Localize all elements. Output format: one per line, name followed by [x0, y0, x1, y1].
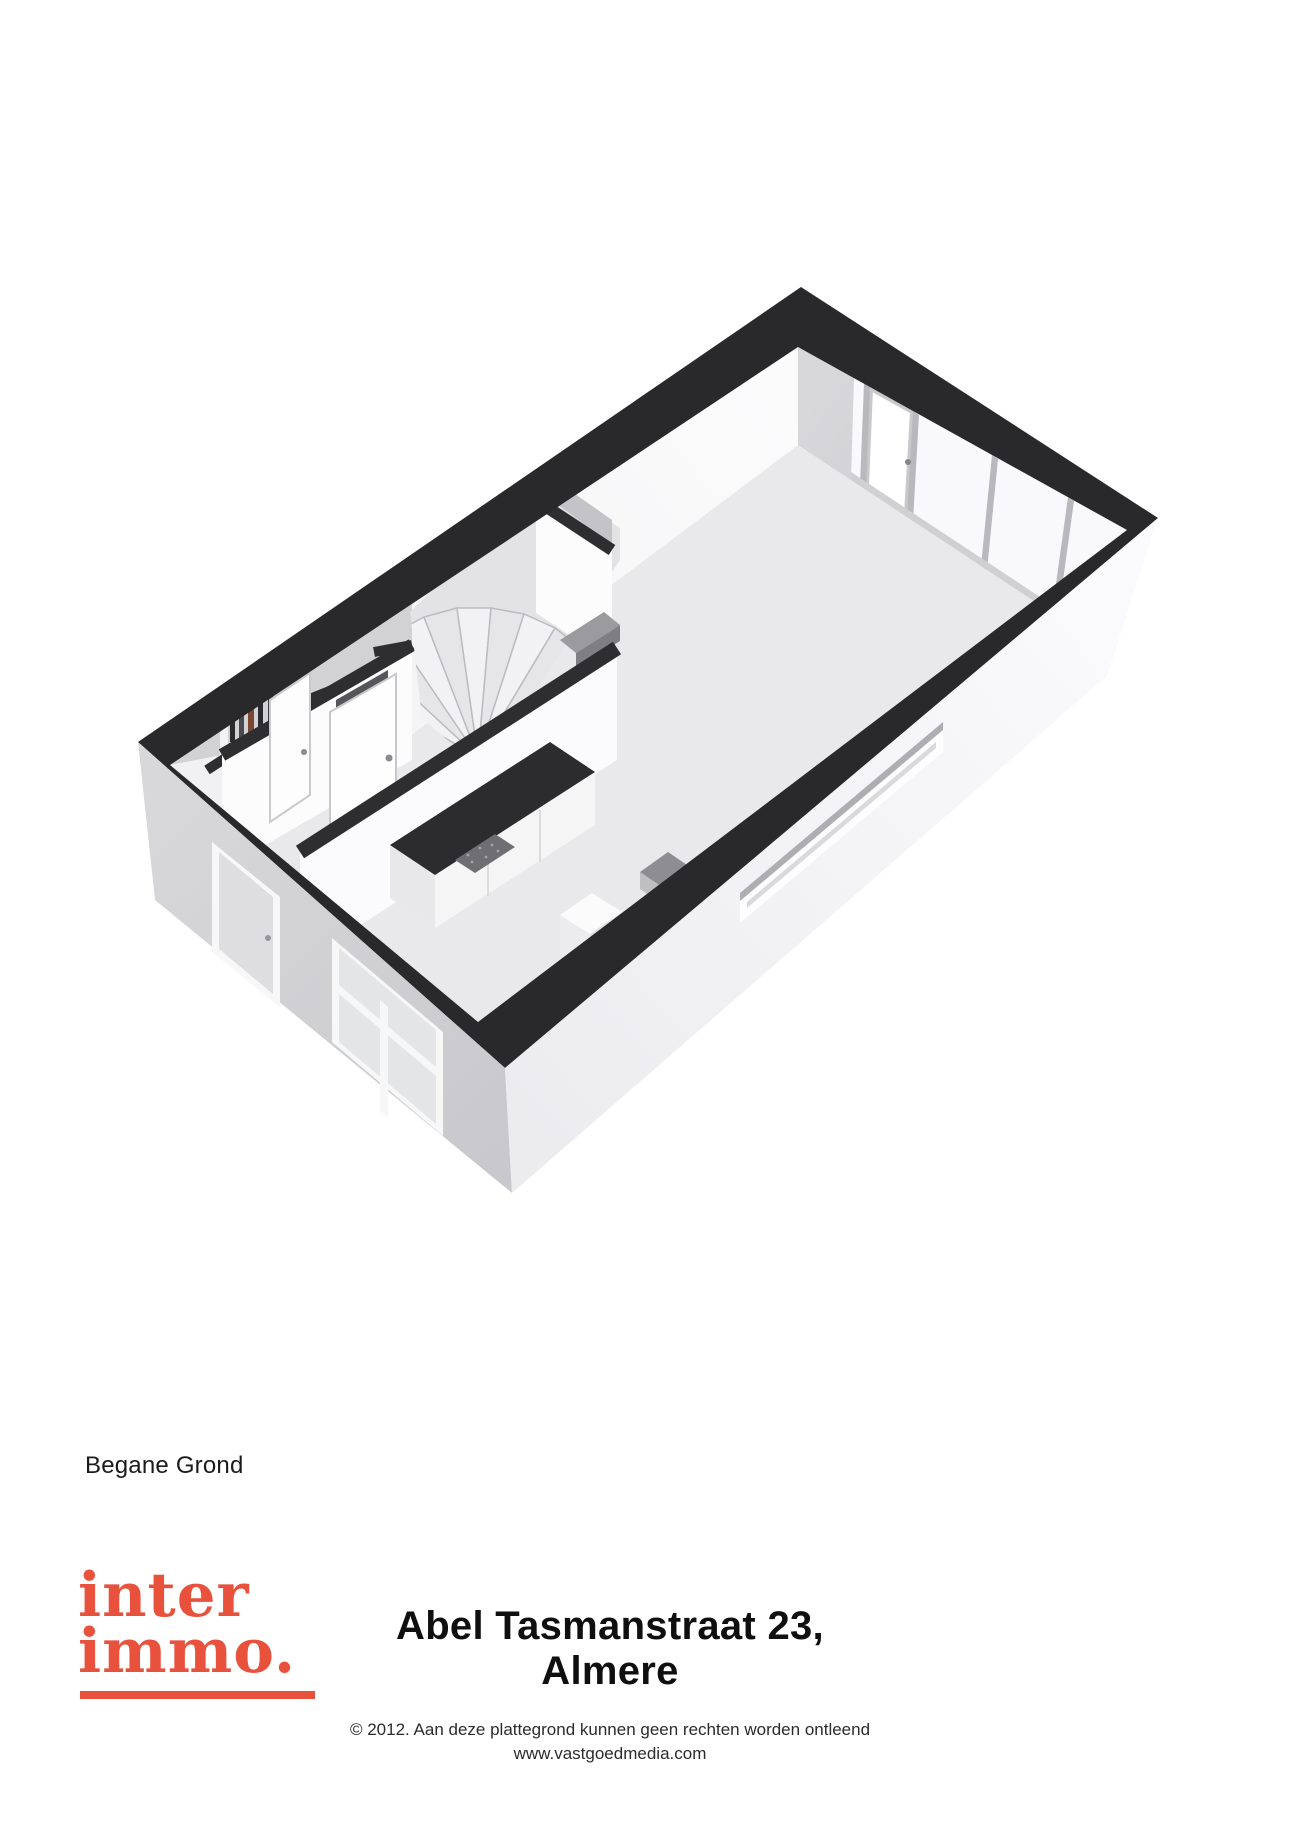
logo-underline — [80, 1691, 315, 1699]
copyright-block: © 2012. Aan deze plattegrond kunnen geen… — [330, 1718, 890, 1766]
closet-door — [270, 673, 310, 822]
brand-logo: inter immo. — [78, 1568, 296, 1680]
copyright-line: © 2012. Aan deze plattegrond kunnen geen… — [330, 1718, 890, 1742]
front-door-handle — [265, 935, 271, 941]
logo-line-2: immo. — [78, 1624, 296, 1680]
website-text: www.vastgoedmedia.com — [330, 1742, 890, 1766]
footer: Abel Tasmanstraat 23, Almere © 2012. Aan… — [330, 1604, 890, 1766]
address-title: Abel Tasmanstraat 23, Almere — [330, 1604, 890, 1694]
toilet-door-handle — [386, 755, 393, 762]
closet-door-handle — [301, 749, 307, 755]
page: Begane Grond inter immo. Abel Tasmanstra… — [0, 0, 1300, 1838]
door-handle — [905, 459, 911, 465]
floor-label: Begane Grond — [85, 1452, 244, 1480]
